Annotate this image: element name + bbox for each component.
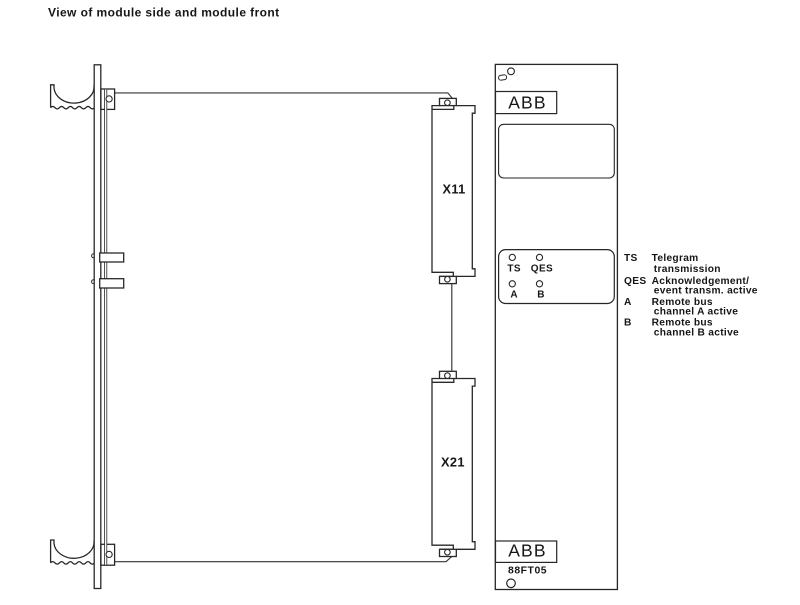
svg-text:Telegram: Telegram: [652, 253, 699, 264]
svg-text:ABB: ABB: [508, 93, 546, 113]
svg-text:TS: TS: [507, 264, 521, 275]
svg-text:A: A: [624, 297, 632, 308]
svg-text:channel A active: channel A active: [654, 307, 738, 318]
svg-text:88FT05: 88FT05: [508, 565, 547, 576]
svg-text:X21: X21: [441, 455, 465, 470]
svg-text:transmission: transmission: [654, 264, 721, 275]
svg-text:ABB: ABB: [508, 540, 546, 560]
svg-text:TS: TS: [624, 253, 638, 264]
svg-text:A: A: [510, 289, 517, 300]
svg-text:QES: QES: [624, 276, 646, 287]
svg-text:B: B: [537, 289, 544, 300]
svg-text:B: B: [624, 318, 632, 329]
svg-text:QES: QES: [531, 264, 553, 275]
svg-text:X11: X11: [443, 182, 466, 197]
svg-text:View of module side and module: View of module side and module front: [48, 6, 280, 20]
svg-text:channel B active: channel B active: [654, 328, 739, 339]
svg-text:event transm. active: event transm. active: [654, 286, 758, 297]
